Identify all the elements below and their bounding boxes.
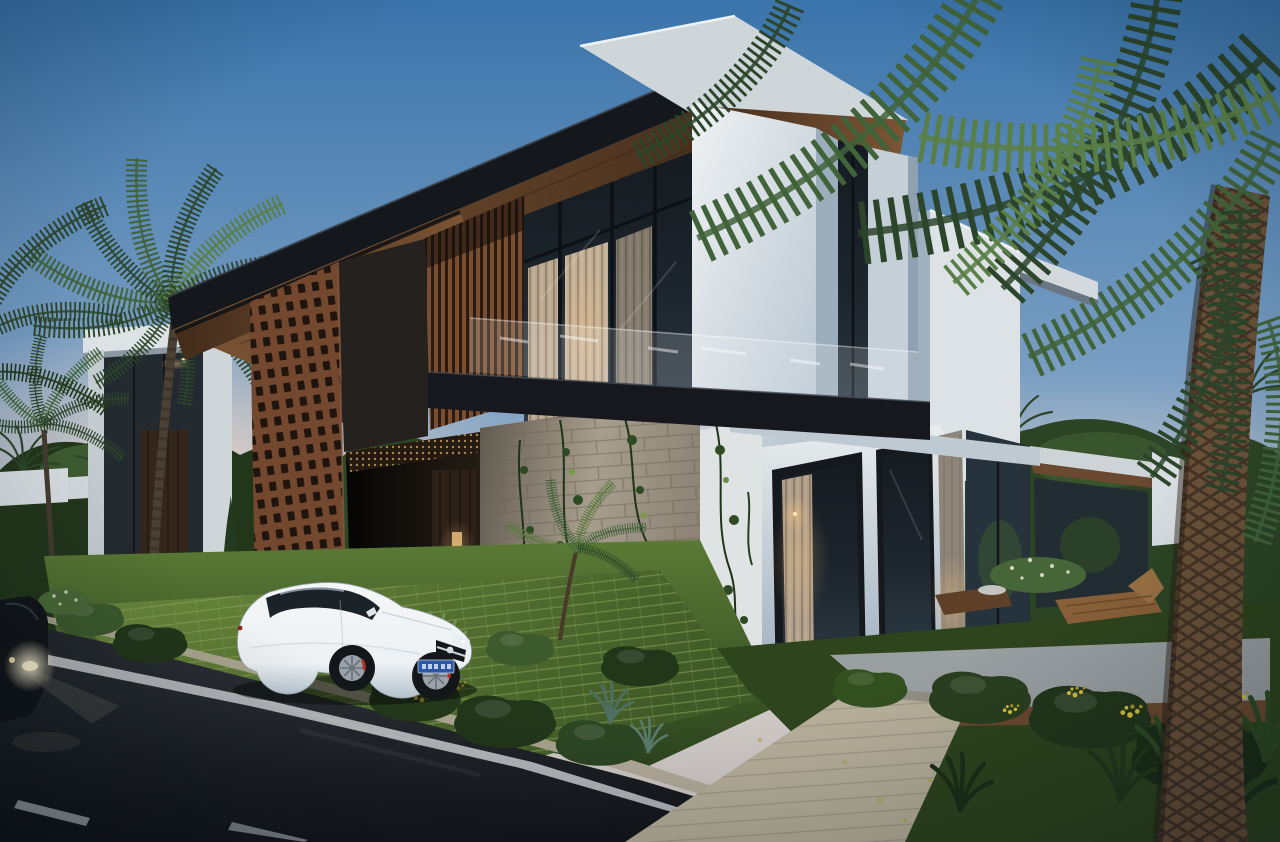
scene-canvas <box>0 0 1280 842</box>
dusk-villa-render <box>0 0 1280 842</box>
vignette-overlay <box>0 0 1280 842</box>
